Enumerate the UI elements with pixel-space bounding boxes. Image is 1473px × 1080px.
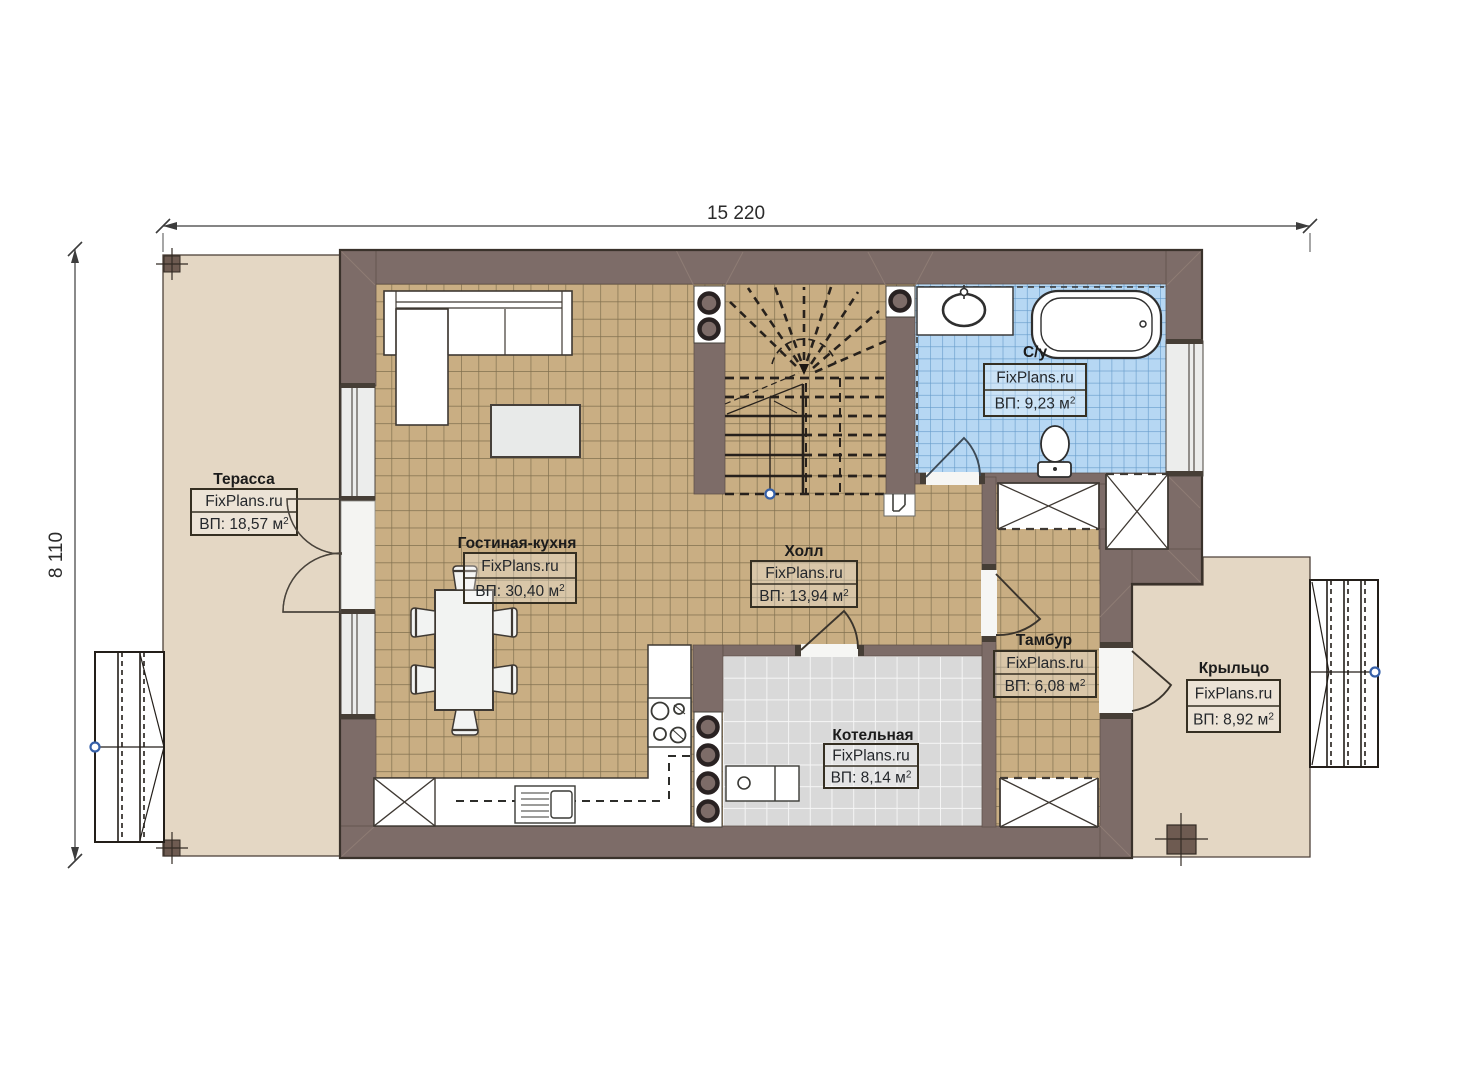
svg-text:ВП: 8,14 м2: ВП: 8,14 м2	[831, 770, 912, 787]
svg-text:FixPlans.ru: FixPlans.ru	[205, 493, 283, 510]
svg-text:8 110: 8 110	[46, 532, 67, 578]
svg-text:ВП: 8,92 м2: ВП: 8,92 м2	[1193, 712, 1274, 729]
svg-text:Гостиная-кухня: Гостиная-кухня	[458, 535, 577, 552]
svg-text:FixPlans.ru: FixPlans.ru	[1006, 655, 1084, 672]
svg-text:FixPlans.ru: FixPlans.ru	[832, 748, 910, 765]
svg-text:Терасса: Терасса	[213, 471, 275, 488]
svg-text:FixPlans.ru: FixPlans.ru	[765, 565, 843, 582]
svg-text:FixPlans.ru: FixPlans.ru	[481, 558, 559, 575]
svg-text:Котельная: Котельная	[832, 727, 913, 744]
svg-text:FixPlans.ru: FixPlans.ru	[1195, 686, 1273, 703]
svg-text:С/у: С/у	[1023, 344, 1048, 361]
svg-text:Тамбур: Тамбур	[1016, 632, 1072, 649]
svg-text:FixPlans.ru: FixPlans.ru	[996, 370, 1074, 387]
svg-text:ВП: 18,57 м2: ВП: 18,57 м2	[199, 516, 289, 533]
svg-text:Холл: Холл	[785, 543, 824, 560]
svg-text:ВП: 9,23 м2: ВП: 9,23 м2	[995, 396, 1076, 413]
svg-text:15 220: 15 220	[707, 203, 765, 224]
svg-text:ВП: 30,40 м2: ВП: 30,40 м2	[475, 583, 565, 600]
svg-text:ВП: 13,94 м2: ВП: 13,94 м2	[759, 588, 849, 605]
svg-text:ВП: 6,08 м2: ВП: 6,08 м2	[1005, 678, 1086, 695]
svg-text:Крыльцо: Крыльцо	[1199, 660, 1270, 677]
